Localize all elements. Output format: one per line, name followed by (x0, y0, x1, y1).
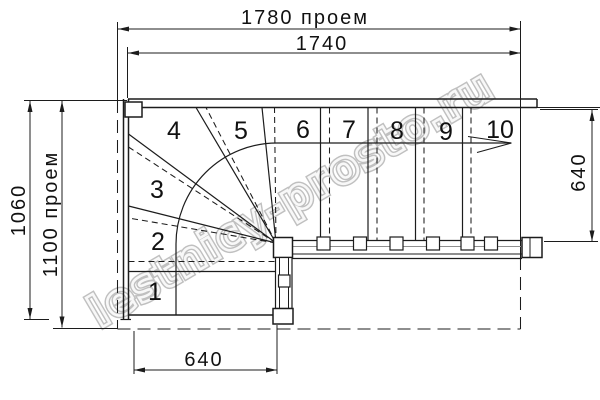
dim-1780-arrow-left (118, 27, 129, 32)
stair-plan-page: lestnicy-prosto.ru lestnicy-prosto.ru (0, 0, 600, 400)
dim-1740-arrow-right (510, 51, 521, 56)
step-label-5: 5 (234, 117, 248, 145)
dim-640r-label: 640 (568, 152, 590, 191)
dim-bottom-width: 640 (134, 349, 277, 373)
baluster-5 (461, 237, 474, 250)
top-left-newel-post (125, 102, 142, 117)
step-label-7: 7 (342, 116, 356, 144)
dim-left-outer: 1060 (8, 101, 33, 319)
dim-640b-arrow-right (266, 368, 277, 373)
dim-1100-arrow-bottom (60, 317, 65, 328)
dim-1060-label: 1060 (8, 184, 30, 237)
step-label-1: 1 (148, 278, 162, 306)
dim-640b-arrow-left (134, 368, 145, 373)
dim-640r-arrow-top (590, 110, 595, 121)
step-label-8: 8 (390, 117, 404, 145)
walk-direction-arrow-lower (477, 143, 512, 153)
step-label-10: 10 (486, 116, 514, 144)
baluster-3 (390, 237, 403, 250)
dim-640r-arrow-bottom (590, 231, 595, 242)
dim-1060-arrow-top (28, 101, 33, 112)
step-label-2: 2 (151, 228, 165, 256)
dim-right-width: 640 (568, 110, 595, 242)
dim-640b-label: 640 (184, 349, 223, 371)
corner-newel-post (274, 238, 293, 258)
step-label-3: 3 (150, 176, 164, 204)
step-label-4: 4 (167, 117, 181, 145)
baluster-2 (354, 237, 367, 250)
posts-and-balusters (125, 102, 542, 324)
dim-left-opening: 1100 проем (40, 101, 65, 328)
dim-stair-length: 1740 (128, 33, 521, 56)
baluster-1 (317, 237, 330, 250)
dim-1100-arrow-top (60, 101, 65, 112)
baluster-4 (427, 237, 440, 250)
step-label-9: 9 (439, 118, 453, 146)
dim-1060-arrow-bottom (28, 308, 33, 319)
dim-1740-label: 1740 (296, 33, 349, 55)
dim-1100-label: 1100 проем (40, 151, 62, 278)
bottom-newel-block (273, 309, 293, 325)
dim-1780-arrow-right (510, 27, 521, 32)
baluster-6 (485, 237, 498, 250)
right-end-post (522, 238, 542, 258)
dim-1740-arrow-left (128, 51, 139, 56)
step-label-6: 6 (296, 116, 310, 144)
baluster-shaft (279, 275, 291, 287)
dim-1780-label: 1780 проем (241, 7, 369, 29)
dim-top-opening: 1780 проем (118, 7, 521, 32)
stair-plan-drawing: lestnicy-prosto.ru lestnicy-prosto.ru (0, 0, 600, 400)
